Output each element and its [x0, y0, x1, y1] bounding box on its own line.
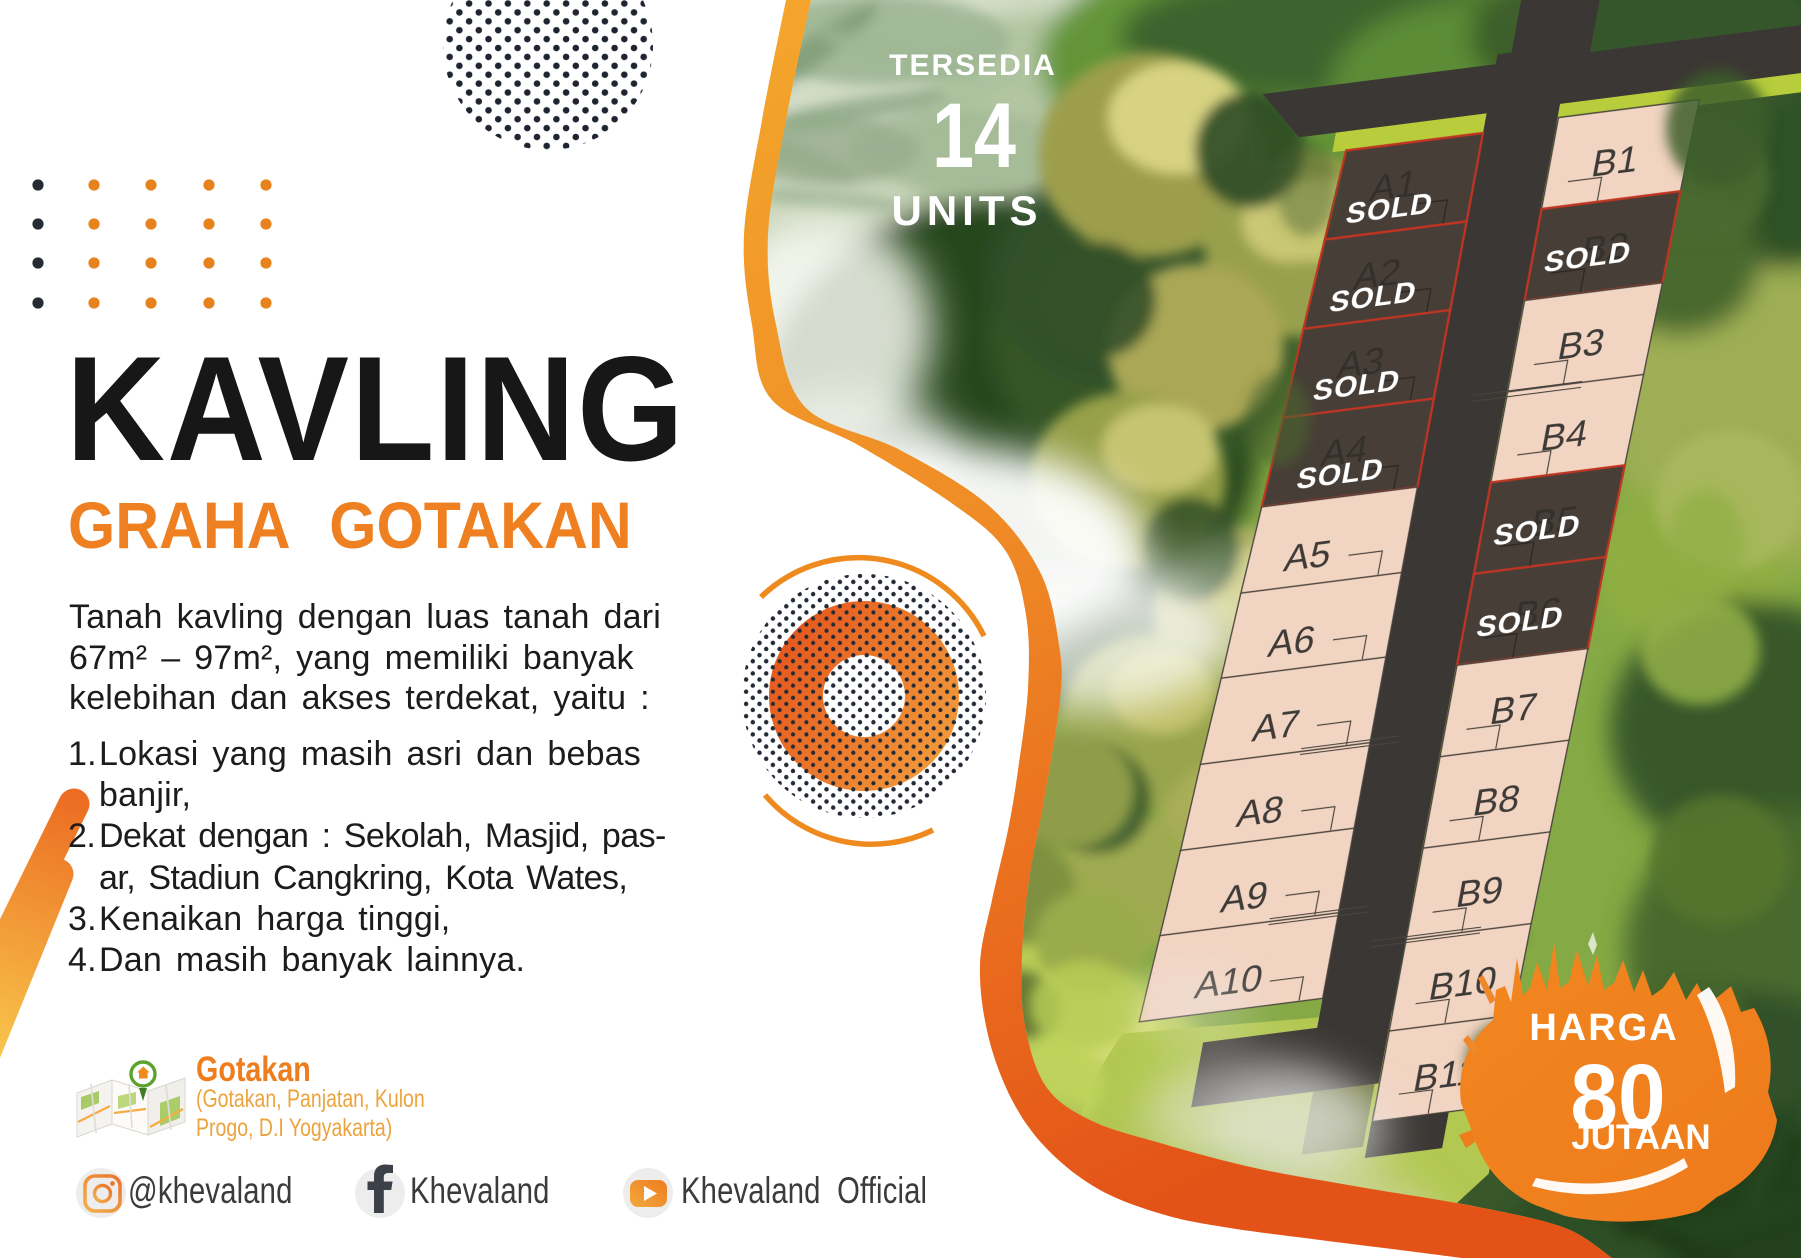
svg-text:JUTAAN: JUTAAN [1571, 1118, 1710, 1157]
svg-text:14: 14 [932, 85, 1016, 187]
svg-text:B7: B7 [1487, 686, 1541, 733]
svg-text:A9: A9 [1218, 874, 1272, 921]
svg-text:B4: B4 [1537, 413, 1591, 460]
svg-text:UNITS: UNITS [892, 187, 1043, 234]
svg-text:B1: B1 [1588, 139, 1642, 186]
svg-text:A5: A5 [1281, 533, 1335, 580]
svg-text:TERSEDIA: TERSEDIA [889, 49, 1057, 82]
svg-text:A7: A7 [1249, 703, 1303, 750]
svg-text:A8: A8 [1233, 789, 1287, 836]
svg-text:B8: B8 [1470, 778, 1524, 825]
svg-text:B3: B3 [1554, 321, 1608, 368]
svg-text:B9: B9 [1453, 869, 1507, 916]
svg-text:HARGA: HARGA [1529, 1007, 1678, 1049]
svg-text:A6: A6 [1265, 619, 1319, 666]
